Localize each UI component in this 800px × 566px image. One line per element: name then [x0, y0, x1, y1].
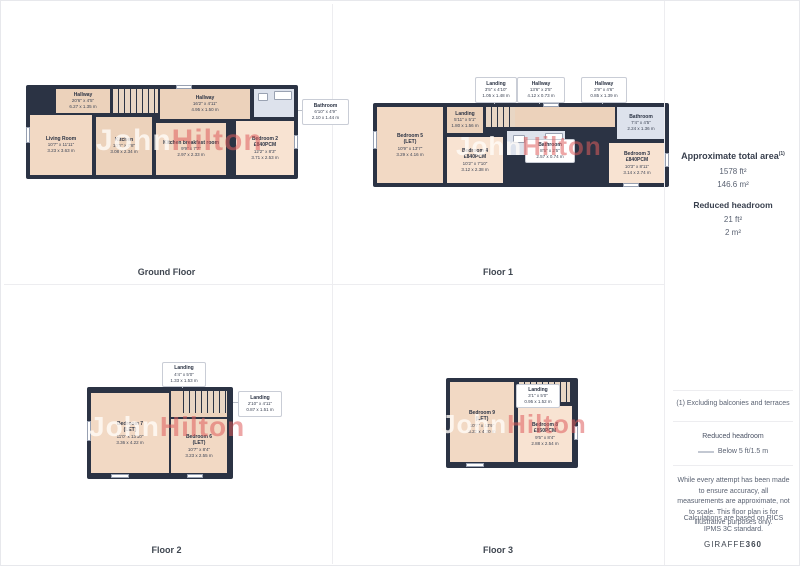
stairs [183, 391, 227, 413]
window [294, 135, 298, 149]
window [574, 426, 578, 440]
floor-title-ground: Ground Floor [1, 267, 332, 277]
room-bedroom-3: Bedroom 3 £840PCM 10'3" x 8'11" 3.14 x 2… [609, 143, 665, 183]
total-area-title-text: Approximate total area [681, 151, 779, 161]
reduced-headroom-title: Reduced headroom [665, 200, 800, 210]
room-dims-m: 2.88 x 2.54 m [531, 441, 558, 447]
legend-row: Below 5 ft/1.5 m [665, 448, 800, 455]
toilet-fixture [258, 93, 268, 101]
room-bedroom-5: Bedroom 5 (LET) 10'9" x 13'7" 3.29 x 4.1… [377, 107, 443, 183]
total-area-footnote-marker: (1) [779, 151, 785, 157]
summary-sidebar: Approximate total area(1) 1578 ft² 146.6… [664, 1, 800, 566]
landing-label-box: Landing 2'10" x 4'11" 0.87 x 1.51 m [238, 391, 282, 417]
room-dims-m: 6.27 x 1.35 m [69, 104, 96, 110]
giraffe360-logo: GIRAFFE360 [665, 540, 800, 549]
room-dims-m: 2.24 x 1.36 m [627, 126, 654, 132]
room-dims-m: 3.14 x 2.74 m [623, 170, 650, 176]
total-area-title: Approximate total area(1) [665, 151, 800, 161]
room-hallway-mid: Hallway 16'2" x 4'11" 4.95 x 1.50 m [160, 89, 250, 119]
floor-1-plan: Bedroom 5 (LET) 10'9" x 13'7" 3.29 x 4.1… [373, 103, 669, 187]
window [543, 103, 559, 107]
room-dims-m: 2.57 x 0.74 m [536, 154, 563, 160]
room-kitchen: Kitchen 10'1" x 7'8" 3.08 x 2.34 m [96, 117, 152, 175]
room-living-room: Living Room 10'7" x 11'11" 3.23 x 3.63 m [30, 115, 92, 175]
hallway-label-box: Hallway 2'9" x 4'6" 0.85 x 1.39 m [581, 77, 627, 103]
room-dims-m: 0.87 x 1.51 m [246, 407, 273, 413]
sidebar-divider [673, 465, 793, 466]
bathtub-fixture [274, 91, 292, 100]
floor-title-2: Floor 2 [1, 545, 332, 555]
room-dims-m: 1.33 x 1.53 m [170, 378, 197, 384]
bathroom-label-box: Bathroom 6'10" x 4'9" 2.10 x 1.44 m [302, 99, 349, 125]
standards-text: Calculations are based on RICS IPMS 3C s… [675, 514, 792, 535]
room-dims-m: 1.05 x 1.48 m [482, 93, 509, 99]
window [176, 85, 192, 89]
window [373, 131, 377, 149]
sidebar-divider [673, 390, 793, 391]
window [87, 421, 91, 441]
room-dims-m: 3.71 x 2.53 m [251, 155, 278, 161]
legend-label: Below 5 ft/1.5 m [718, 448, 768, 455]
bathroom-label-box: Bathroom 8'5" x 2'5" 2.57 x 0.74 m [525, 139, 575, 163]
window [623, 183, 639, 187]
room-dims-m: 3.36 x 4.22 m [116, 440, 143, 446]
room-bedroom-2: Bedroom 2 £840PCM 12'2" x 8'3" 3.71 x 2.… [236, 121, 294, 175]
hallway-label-box: Hallway 13'6" x 2'5" 4.12 x 0.73 m [517, 77, 565, 103]
ground-floor-plan: Hallway 20'6" x 4'5" 6.27 x 1.35 m Livin… [26, 85, 298, 179]
reduced-headroom-m: 2 m² [665, 228, 800, 237]
sidebar-divider [673, 421, 793, 422]
room-dims-m: 3.08 x 2.34 m [110, 149, 137, 155]
room-dims-m: 3.23 x 2.55 m [185, 453, 212, 459]
room-dims-m: 3.23 x 3.63 m [47, 148, 74, 154]
room-bedroom-4: Bedroom 4 £840PCM 10'2" x 7'10" 3.12 x 2… [447, 137, 503, 183]
room-dims-m: 0.85 x 1.39 m [590, 93, 617, 99]
window [466, 463, 484, 467]
floor-title-1: Floor 1 [332, 267, 664, 277]
room-bedroom-7: Bedroom 7 (LET) 11'0" x 13'10" 3.36 x 4.… [91, 393, 169, 473]
room-bedroom-8: Bedroom 8 £850PCM 9'5" x 8'4" 2.88 x 2.5… [518, 406, 572, 462]
room-dims-m: 2.97 x 2.33 m [177, 152, 204, 158]
window [26, 127, 30, 143]
stairs [485, 107, 515, 127]
brand-number: 360 [746, 540, 762, 549]
room-dims-m: 3.22 x 4.20 m [468, 429, 495, 435]
room-bathroom-right: Bathroom 7'4" x 4'5" 2.24 x 1.36 m [617, 107, 665, 139]
total-area-ft: 1578 ft² [665, 167, 800, 176]
row-divider [4, 284, 664, 285]
floorplan-sheet: Hallway 20'6" x 4'5" 6.27 x 1.35 m Livin… [0, 0, 800, 566]
room-landing-f1: Landing 5'11" x 5'1" 1.80 x 1.56 m [447, 107, 483, 133]
sink-fixture [513, 135, 525, 143]
room-kitchen-breakfast: Kitchen breakfast room 9'9" x 7'7" 2.97 … [156, 123, 226, 175]
floor-3-plan: Bedroom 9 (LET) 10'7" x 13'9" 3.22 x 4.2… [446, 378, 578, 468]
total-area-m: 146.6 m² [665, 180, 800, 189]
window [111, 474, 129, 478]
window [665, 153, 669, 167]
floor-2-plan: Bedroom 7 (LET) 11'0" x 13'10" 3.36 x 4.… [87, 387, 233, 479]
brand-text: GIRAFFE [704, 540, 746, 549]
landing-label-box: Landing 4'4" x 5'0" 1.33 x 1.53 m [162, 362, 206, 387]
reduced-headroom-line-swatch [698, 451, 714, 453]
stairs [112, 89, 158, 113]
room-bedroom-6: Bedroom 6 (LET) 10'7" x 8'4" 3.23 x 2.55… [171, 419, 227, 473]
room-dims-m: 2.10 x 1.44 m [312, 115, 339, 121]
room-dims-m: 3.12 x 2.38 m [461, 167, 488, 173]
reduced-headroom-ft: 21 ft² [665, 215, 800, 224]
room-dims-m: 1.80 x 1.56 m [451, 123, 478, 129]
landing-label-box: Landing 3'5" x 4'10" 1.05 x 1.48 m [475, 77, 517, 103]
floor-title-3: Floor 3 [332, 545, 664, 555]
footnote: (1) Excluding balconies and terraces [665, 400, 800, 407]
window [187, 474, 203, 478]
room-dims-m: 0.95 x 1.52 m [524, 399, 551, 405]
legend-title: Reduced headroom [665, 433, 800, 440]
room-dims-m: 4.12 x 0.73 m [527, 93, 554, 99]
room-dims-m: 3.29 x 4.16 m [396, 152, 423, 158]
room-dims-m: 4.95 x 1.50 m [191, 107, 218, 113]
room-bedroom-9: Bedroom 9 (LET) 10'7" x 13'9" 3.22 x 4.2… [450, 382, 514, 462]
landing-label-box: Landing 3'1" x 5'0" 0.95 x 1.52 m [516, 384, 560, 408]
room-hallway-front: Hallway 20'6" x 4'5" 6.27 x 1.35 m [56, 89, 110, 113]
